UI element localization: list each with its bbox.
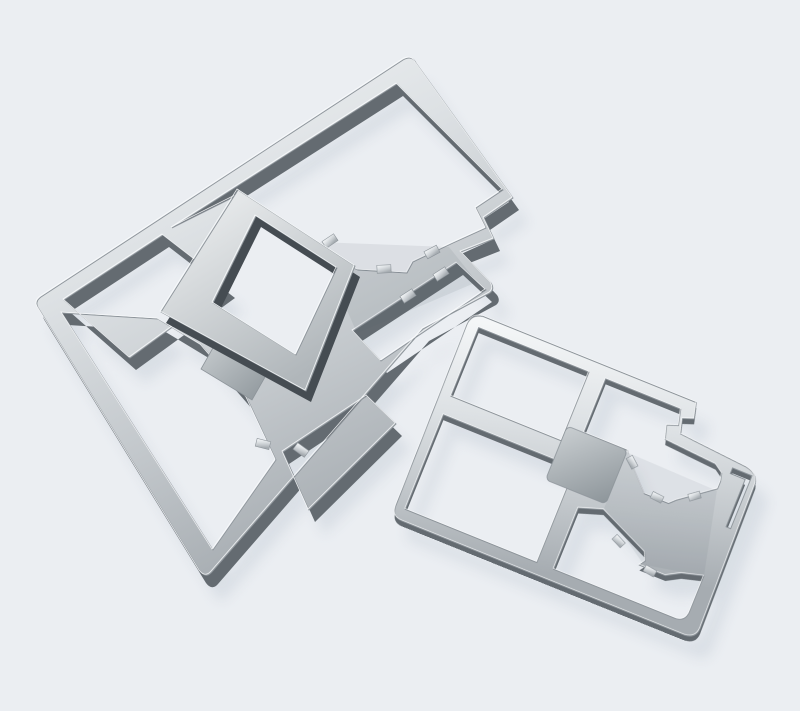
photo-canvas [0,0,800,711]
solder-tab [377,265,391,274]
product-photo [0,0,800,711]
